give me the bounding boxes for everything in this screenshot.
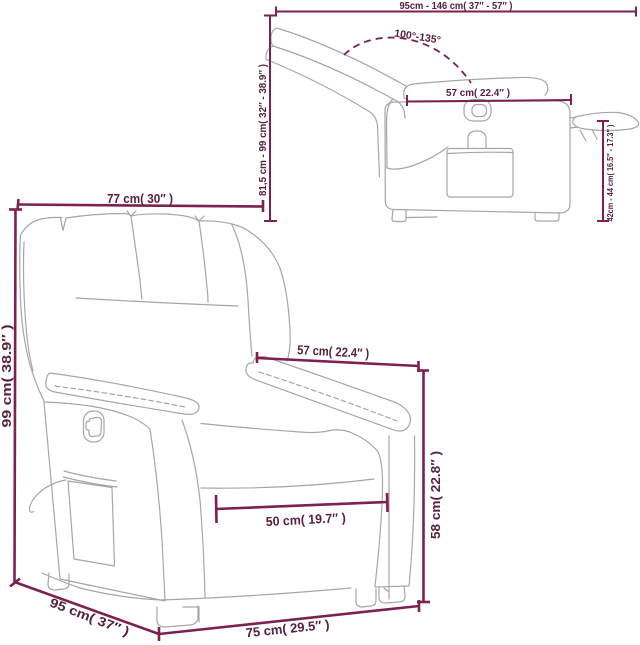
svg-text:58 cm( 22.8″ ): 58 cm( 22.8″ )	[428, 451, 443, 539]
svg-text:57 cm( 22.4″ ): 57 cm( 22.4″ )	[446, 88, 510, 99]
svg-text:95cm - 146 cm( 37″ - 57″ ): 95cm - 146 cm( 37″ - 57″ )	[400, 1, 513, 12]
svg-text:42cm - 44 cm( 16.5″ - 17.3″ ): 42cm - 44 cm( 16.5″ - 17.3″ )	[605, 124, 615, 221]
svg-text:81,5 cm - 99 cm( 32″ - 38.9″ ): 81,5 cm - 99 cm( 32″ - 38.9″ )	[258, 64, 269, 196]
svg-text:99 cm( 38.9″ ): 99 cm( 38.9″ )	[0, 325, 14, 428]
svg-text:77 cm( 30″ ): 77 cm( 30″ )	[107, 191, 173, 206]
